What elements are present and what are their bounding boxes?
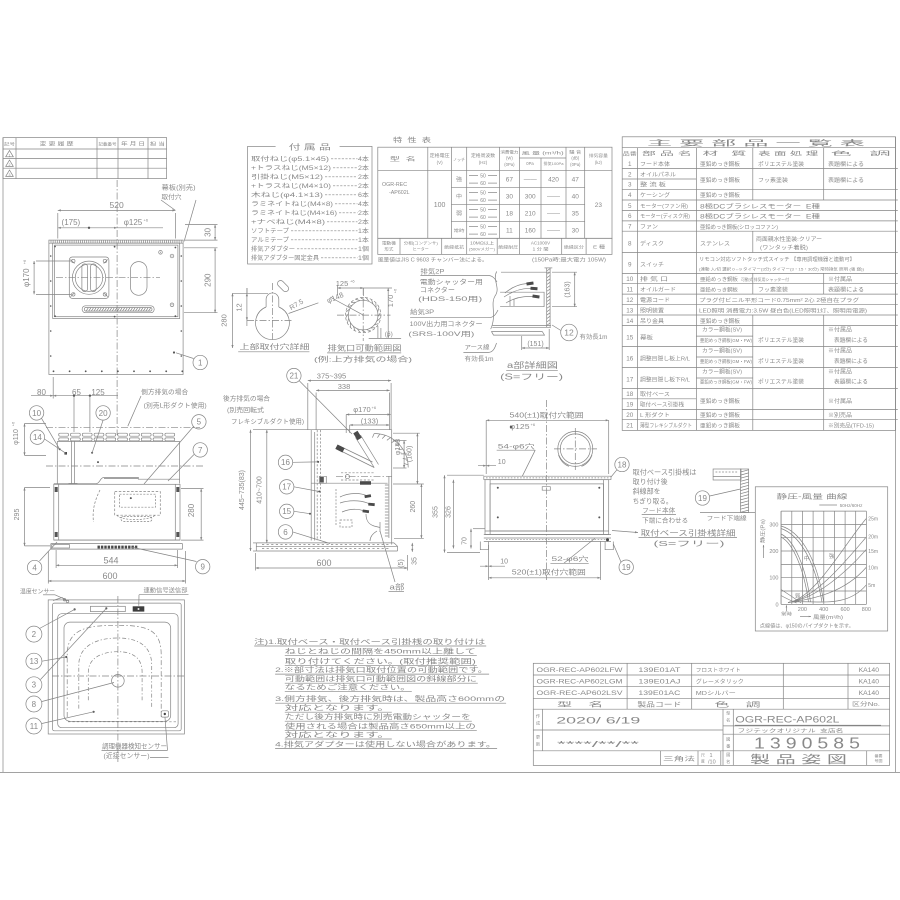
svg-text:4本: 4本 [358,200,369,208]
svg-text:亜鉛めっき鋼板: 亜鉛めっき鋼板 [700,275,739,283]
svg-text:50: 50 [480,173,486,179]
svg-text:100V出力用コネクター: 100V出力用コネクター [410,319,483,328]
svg-text:φ170: φ170 [22,268,31,287]
svg-text:色 調: 色 調 [831,150,893,158]
svg-text:(kJ): (kJ) [595,160,603,165]
svg-text:製品コード: 製品コード [637,700,681,709]
svg-text:ラミネイトねじ(M4×16): ラミネイトねじ(M4×16) [251,210,337,217]
svg-text:表題欄による: 表題欄による [828,160,864,168]
svg-text:電動機: 電動機 [382,241,396,246]
svg-text:2本: 2本 [358,173,369,181]
svg-text:表 面 処 理: 表 面 処 理 [758,150,819,158]
svg-text:8: 8 [32,700,37,709]
svg-text:取付ベース引掛桟は: 取付ベース引掛桟は [633,467,697,476]
svg-text:亜鉛めっき鋼板: 亜鉛めっき鋼板 [700,422,740,430]
svg-text:13: 13 [626,307,634,314]
svg-text:なるためご注意ください。: なるためご注意ください。 [285,682,411,691]
svg-text:製 品 姿 図: 製 品 姿 図 [750,752,847,766]
svg-text:点線値は、φ150のパイプダクトを示す。: 点線値は、φ150のパイプダクトを示す。 [760,623,854,630]
svg-text:アルミテープ: アルミテープ [251,237,290,244]
svg-text:10: 10 [32,409,41,418]
svg-text:19: 19 [622,563,631,572]
svg-text:4: 4 [628,192,632,199]
svg-text:調理機器検知センサー: 調理機器検知センサー [102,741,167,750]
svg-text:対応となります。: 対応となります。 [285,703,391,712]
svg-text:1個: 1個 [358,245,369,253]
svg-text:520: 520 [110,200,124,210]
svg-text:ラミネイトねじ(M4×8): ラミネイトねじ(M4×8) [251,201,333,208]
svg-text:吊り金具: 吊り金具 [640,317,664,325]
svg-text:16: 16 [626,356,634,363]
svg-text:オイルパネル: オイルパネル [640,171,676,178]
svg-text:3.側方排気、後方排気時は、製品高さ600mmの: 3.側方排気、後方排気時は、製品高さ600mmの [275,694,505,703]
svg-text:8極DCブラシレスモーター E種: 8極DCブラシレスモーター E種 [700,213,820,221]
svg-text:モーター(ディスク用): モーター(ディスク用) [640,212,690,220]
svg-text:名: 名 [726,717,730,724]
svg-text:ヒーター: ヒーター [413,247,429,252]
svg-text:(ワンタッチ着脱): (ワンタッチ着脱) [760,244,808,252]
svg-text:亜鉛めっき鋼板(GM・FW): 亜鉛めっき鋼板(GM・FW) [700,358,752,365]
svg-text:成: 成 [536,720,540,727]
svg-text:12: 12 [626,297,634,304]
svg-text:8極DCブラシレスモーター E種: 8極DCブラシレスモーター E種 [700,202,820,210]
svg-text:4: 4 [32,563,37,572]
svg-text:(例:上方排気の場合): (例:上方排気の場合) [314,354,412,363]
svg-text:1: 1 [9,153,11,157]
svg-text:(近接センサー): (近接センサー) [104,751,150,760]
svg-text:(0Pa): (0Pa) [570,162,581,167]
svg-text:12: 12 [564,328,574,338]
svg-text:型 名: 型 名 [557,700,603,709]
svg-text:LED照明 消費電力:3.5W 昼白色(LED照明1灯、照明: LED照明 消費電力:3.5W 昼白色(LED照明1灯、照明用電源) [699,306,867,314]
svg-text:上部取付穴詳細: 上部取付穴詳細 [240,342,310,351]
svg-text:2: 2 [628,171,632,178]
svg-text:絶縁抵抗: 絶縁抵抗 [444,244,465,251]
svg-text:3: 3 [32,681,37,690]
svg-text:表題欄による: 表題欄による [828,176,864,184]
svg-text:(連動 入/切 選択 0↔9 タイマー(3分) タイマー(3: (連動 入/切 選択 0↔9 タイマー(3分) タイマー(3・15・30分) 常… [699,265,865,271]
svg-text:300: 300 [525,193,536,200]
svg-text:定格電圧: 定格電圧 [430,152,451,159]
svg-text:※別売品(TFD-15): ※別売品(TFD-15) [828,422,874,430]
svg-text:0Pa: 0Pa [526,161,534,166]
svg-text:引掛ねじ(M5×12): 引掛ねじ(M5×12) [251,173,323,181]
svg-text:2本: 2本 [358,182,369,190]
svg-text:——: —— [547,210,561,217]
svg-text:5: 5 [628,203,632,210]
svg-text:調整目隠し板下R/L: 調整目隠し板下R/L [640,376,690,384]
svg-text:260: 260 [410,501,417,513]
svg-text:弱: 弱 [456,210,462,217]
svg-text:静圧-風量 曲線: 静圧-風量 曲線 [777,492,849,501]
svg-text:表題欄による: 表題欄による [834,336,868,344]
svg-text:300: 300 [769,523,778,529]
svg-text:排気アダプター: 排気アダプター [251,245,295,253]
svg-text:200: 200 [798,607,807,613]
svg-text:亜鉛めっき鋼板(シロッコファン): 亜鉛めっき鋼板(シロッコファン) [700,223,778,231]
svg-text:30: 30 [572,227,580,234]
svg-text:亜鉛めっき鋼板(GM・FW): 亜鉛めっき鋼板(GM・FW) [700,337,752,344]
svg-text:50: 50 [480,224,486,230]
svg-text:13: 13 [29,657,38,666]
svg-text:(150Pa時:最大電力 105W): (150Pa時:最大電力 105W) [532,256,606,264]
svg-text:52-φ6穴: 52-φ6穴 [552,554,590,563]
svg-text:40: 40 [572,193,580,200]
svg-text:亜鉛めっき鋼板: 亜鉛めっき鋼板 [700,317,740,325]
svg-text:KA140: KA140 [859,690,880,697]
svg-text:ディスク: ディスク [640,239,664,247]
svg-text:亜鉛めっき鋼板: 亜鉛めっき鋼板 [700,176,740,184]
svg-text:5: 5 [197,418,202,427]
svg-text:整 流 板: 整 流 板 [640,181,667,189]
svg-text:強: 強 [829,552,835,560]
svg-text:15m: 15m [868,549,878,555]
svg-text:注)1.取付ベース・取付ベース引掛桟の取り付けは: 注)1.取付ベース・取付ベース引掛桟の取り付けは [254,637,485,646]
svg-text:カラー鋼板(SV): カラー鋼板(SV) [702,367,742,375]
svg-text:オイルガード: オイルガード [640,285,676,293]
svg-text:中: 中 [804,555,810,563]
svg-text:19: 19 [626,402,634,409]
svg-text:****/**/**: ****/**/** [557,739,641,749]
svg-text:3: 3 [628,182,632,189]
svg-text:54-φ6穴: 54-φ6穴 [498,442,536,451]
svg-text:スイッチ: スイッチ [640,261,664,268]
svg-text:連動信号送信部: 連動信号送信部 [144,587,188,595]
svg-text:17: 17 [282,483,291,492]
svg-text:騒 音: 騒 音 [569,149,581,156]
svg-text:14: 14 [626,318,634,325]
svg-text:(W): (W) [506,156,513,161]
svg-text:幕板: 幕板 [640,334,653,342]
svg-text:50: 50 [480,190,486,196]
svg-text:410~700: 410~700 [256,476,263,504]
svg-text:15: 15 [282,507,291,516]
svg-text:番要: 番要 [875,753,883,758]
svg-text:1本: 1本 [358,227,369,235]
svg-text:OGR-REC: OGR-REC [382,182,407,188]
svg-text:型 名: 型 名 [390,155,416,163]
svg-text:375~395: 375~395 [317,372,346,381]
svg-text:取り付け後: 取り付け後 [633,477,668,486]
svg-text:定格周波数: 定格周波数 [471,152,496,159]
svg-text:部 品 名: 部 品 名 [642,150,692,158]
svg-text:対応となります。: 対応となります。 [285,730,391,739]
svg-text:尺: 尺 [701,754,705,758]
svg-text:(175): (175) [62,218,81,227]
svg-text:9: 9 [200,563,205,572]
svg-text:280: 280 [220,314,229,327]
svg-text:KA140: KA140 [859,678,880,685]
svg-text:25m: 25m [868,517,878,523]
svg-text:調整目隠し板上R/L: 調整目隠し板上R/L [640,355,690,363]
svg-text:給気3P: 給気3P [410,307,434,316]
svg-text:※付属品: ※付属品 [828,367,852,375]
svg-text:両面親水性塗装:クリアー: 両面親水性塗装:クリアー [756,235,822,243]
svg-text:ねじとねじの間隔を450mm以上離して: ねじとねじの間隔を450mm以上離して [285,647,476,656]
svg-text:度: 度 [701,759,705,764]
svg-text:+ナベねじ(M4×8): +ナベねじ(M4×8) [251,219,325,226]
svg-text:号図: 号図 [875,758,883,763]
svg-text:326: 326 [445,506,452,518]
svg-text:取付ベース引掛桟詳細: 取付ベース引掛桟詳細 [641,527,736,537]
svg-text:355: 355 [433,506,440,518]
svg-text:φ110: φ110 [13,429,20,445]
svg-text:420: 420 [548,176,559,183]
svg-text:ステンレス: ステンレス [700,240,730,247]
svg-text:フッ素塗装: フッ素塗装 [758,176,788,184]
svg-text:AC1000V: AC1000V [531,241,550,246]
svg-text:290: 290 [204,273,213,287]
svg-text:側方排気の場合: 側方排気の場合 [141,387,189,396]
svg-text:担 当: 担 当 [150,141,165,148]
svg-text:フード本体: フード本体 [640,160,670,168]
svg-text:風 量 (m³/h): 風 量 (m³/h) [522,150,565,157]
svg-text:+6: +6 [372,405,377,410]
svg-text:排気アダプター固定金具: 排気アダプター固定金具 [251,254,319,262]
svg-text:表題欄による: 表題欄による [834,357,868,365]
svg-text:※付属品: ※付属品 [828,326,852,334]
svg-text:60: 60 [480,198,486,204]
svg-text:(dB): (dB) [571,156,580,161]
svg-text:20m: 20m [868,535,878,541]
svg-text:(HDS-150用): (HDS-150用) [418,295,482,303]
svg-text:ファン: ファン [640,224,658,231]
svg-text:取付穴: 取付穴 [162,192,183,201]
svg-text:9: 9 [628,261,632,268]
svg-text:35: 35 [572,210,580,217]
svg-text:3: 3 [9,173,11,177]
svg-text:18: 18 [626,391,634,398]
svg-text:コネクター: コネクター [420,285,455,294]
svg-text:a部: a部 [390,582,406,592]
svg-text:※付属品: ※付属品 [828,275,852,283]
svg-text:280: 280 [187,503,196,517]
svg-text:品番: 品番 [623,151,637,158]
svg-text:18: 18 [618,460,627,469]
svg-text:139E01AJ: 139E01AJ [638,678,680,685]
svg-text:亜鉛めっき鋼板(GM・FW): 亜鉛めっき鋼板(GM・FW) [700,379,752,386]
svg-text:型: 型 [726,710,730,716]
svg-text:ポリエステル塗装: ポリエステル塗装 [758,160,804,168]
svg-text:1390585: 1390585 [754,736,865,753]
svg-text:(SRS-100V用): (SRS-100V用) [408,330,474,338]
svg-text:E 種: E 種 [593,244,606,251]
svg-text:変 更 履 歴: 変 更 履 歴 [40,141,74,148]
svg-text:2: 2 [9,163,11,167]
svg-text:11: 11 [30,722,39,731]
svg-text:8: 8 [628,240,632,247]
svg-text:ただし後方排気時に別売電動シャッターを: ただし後方排気時に別売電動シャッターを [285,712,471,721]
svg-text:分相(コンデンサ): 分相(コンデンサ) [404,241,439,246]
svg-text:20: 20 [626,412,634,419]
svg-text:風量値はJIS C 9603 チャンバー法による。: 風量値はJIS C 9603 チャンバー法による。 [378,256,488,264]
svg-text:6: 6 [283,528,288,537]
svg-text:10: 10 [626,276,634,283]
svg-text:21: 21 [626,423,634,430]
svg-text:有効長1m: 有効長1m [465,355,494,363]
svg-text:(133): (133) [361,416,379,425]
svg-text:リモコン対応ソフトタッチ式スイッチ 【専用調理機器と連動可】: リモコン対応ソフトタッチ式スイッチ 【専用調理機器と連動可】 [699,256,855,263]
svg-text:フロストホワイト: フロストホワイト [696,667,741,674]
svg-text:50Hz/60Hz: 50Hz/60Hz [840,503,863,508]
svg-text:2020/ 6/19: 2020/ 6/19 [556,716,640,727]
svg-text:1本: 1本 [358,236,369,244]
svg-text:φ125: φ125 [124,218,143,227]
svg-text:+6: +6 [531,422,536,427]
svg-text:17: 17 [626,377,634,384]
svg-text:(S=フリー): (S=フリー) [654,539,726,548]
svg-text:取付ベース引掛桟: 取付ベース引掛桟 [640,401,684,409]
svg-text:15: 15 [626,335,634,342]
svg-text:OGR-REC-AP602L: OGR-REC-AP602L [735,714,839,725]
svg-text:a部詳細図: a部詳細図 [507,360,558,370]
svg-text:亜鉛めっき鋼板: 亜鉛めっき鋼板 [700,191,740,199]
svg-text:+トラスねじ(M4×10): +トラスねじ(M4×10) [251,183,331,190]
svg-text:記号: 記号 [4,141,15,148]
svg-text:排気容量: 排気容量 [589,152,608,159]
svg-text:※付属品: ※付属品 [828,397,852,405]
svg-text:※別売品: ※別売品 [828,411,852,419]
svg-text:+トラスねじ(M5×12): +トラスねじ(M5×12) [251,165,331,172]
svg-text:フッ素塗装: フッ素塗装 [758,285,788,293]
svg-text:544: 544 [103,555,118,565]
svg-text:電動シャッター用: 電動シャッター用 [420,277,483,286]
svg-text:(160): (160) [407,446,414,462]
svg-text:——: —— [547,227,561,234]
svg-text:(163): (163) [564,281,571,297]
svg-text:600: 600 [102,571,117,581]
svg-text:11: 11 [627,286,634,293]
svg-text:20: 20 [99,409,108,418]
svg-text:排 気 口: 排 気 口 [640,275,668,283]
svg-text:4.排気アダプターは使用しない場合があります。: 4.排気アダプターは使用しない場合があります。 [275,740,496,749]
svg-text:60: 60 [480,215,486,221]
svg-text:67: 67 [506,176,514,183]
svg-text:2.※部寸法は排気口取付位置の可動範囲です。: 2.※部寸法は排気口取付位置の可動範囲です。 [275,665,488,674]
svg-text:亜鉛めっき鋼板: 亜鉛めっき鋼板 [700,397,740,405]
svg-text:1個: 1個 [358,254,369,262]
svg-text:——: —— [547,193,561,200]
svg-text:L 形ダクト: L 形ダクト [640,411,670,419]
svg-text:4本: 4本 [358,155,369,163]
svg-text:取付ねじ(φ5.1×45): 取付ねじ(φ5.1×45) [251,155,329,163]
svg-text:常時: 常時 [454,227,466,234]
svg-text:520(±1)取付穴範囲: 520(±1)取付穴範囲 [512,567,586,576]
svg-text:200: 200 [769,549,778,555]
svg-text:OGR-REC-AP602LFW: OGR-REC-AP602LFW [537,667,624,674]
svg-text:210: 210 [525,210,536,217]
svg-text:材 質: 材 質 [703,150,748,158]
svg-text:800: 800 [862,607,871,613]
svg-text:139E01AC: 139E01AC [638,690,680,697]
svg-text:取付ベース: 取付ベース [640,390,670,398]
svg-text:名: 名 [726,758,730,765]
svg-text:7: 7 [198,446,203,455]
svg-text:亜鉛めっき鋼板: 亜鉛めっき鋼板 [700,411,740,419]
svg-text:50: 50 [480,207,486,213]
svg-text:下端に合わせる: 下端に合わせる [642,515,688,524]
svg-text:100: 100 [769,576,778,582]
svg-text:445~735(83): 445~735(83) [239,470,246,510]
svg-text:600: 600 [841,607,850,613]
svg-text:60: 60 [480,232,486,238]
svg-text:2本: 2本 [358,164,369,172]
svg-text:中: 中 [456,192,462,200]
svg-text:主 要 部 品 一 覧 表: 主 要 部 品 一 覧 表 [647,137,867,147]
svg-text:有効長1m: 有効長1m [580,333,608,341]
svg-text:照明装置: 照明装置 [640,306,664,314]
svg-text:1: 1 [709,753,712,759]
svg-text:10: 10 [500,559,508,566]
svg-text:6: 6 [628,213,632,220]
svg-text:ノッチ: ノッチ [453,157,465,162]
svg-text:295: 295 [14,509,21,521]
svg-text:2本: 2本 [358,209,369,217]
svg-text:+6: +6 [393,288,398,293]
svg-text:記載番号: 記載番号 [99,141,117,148]
svg-text:ソフトテープ: ソフトテープ [251,228,290,235]
svg-text:排気口可動範囲図: 排気口可動範囲図 [328,343,402,353]
svg-text:表題欄による: 表題欄による [828,285,864,293]
svg-text:600: 600 [316,558,331,568]
svg-text:14: 14 [33,433,42,442]
svg-text:斜線部を: 斜線部を [633,487,661,496]
svg-text:400: 400 [819,607,828,613]
svg-text:7: 7 [628,224,632,231]
svg-text:1: 1 [198,358,203,367]
svg-text:木ねじ(φ4.1×13): 木ねじ(φ4.1×13) [251,191,323,199]
svg-text:形式: 形式 [384,247,393,252]
svg-text:10m: 10m [868,566,878,572]
svg-text:アース線: アース線 [465,343,490,351]
svg-text:+6: +6 [144,218,149,223]
svg-text:(0Pa): (0Pa) [504,162,515,167]
svg-text:風量(m³/h): 風量(m³/h) [813,614,843,621]
svg-text:ポリエステル塗装: ポリエステル塗装 [758,378,804,386]
svg-text:新: 新 [536,741,540,748]
svg-text:可動範囲は排気口可動範囲図の斜線部分に: 可動範囲は排気口可動範囲図の斜線部分に [285,674,477,683]
svg-text:6本: 6本 [358,191,369,199]
svg-text:(6): (6) [385,331,393,338]
svg-text:47: 47 [572,176,580,183]
svg-text:10MΩ以上: 10MΩ以上 [470,240,494,246]
svg-text:11: 11 [506,227,513,234]
svg-text:23: 23 [595,202,603,209]
svg-text:カラー鋼板(SV): カラー鋼板(SV) [702,326,742,334]
svg-text:排気100Pa: 排気100Pa [544,161,565,166]
svg-text:特 性 表: 特 性 表 [393,135,432,144]
svg-text:付 属 品: 付 属 品 [289,143,331,152]
svg-text:(5): (5) [398,559,405,568]
svg-text:+6: +6 [11,421,16,426]
svg-text:60: 60 [480,181,486,187]
svg-text:18: 18 [506,210,514,217]
svg-text:ポリエステル塗装: ポリエステル塗装 [758,336,804,344]
svg-text:5m: 5m [868,583,875,589]
svg-text:(Hz): (Hz) [479,160,488,165]
svg-text:ちぎり取る。: ちぎり取る。 [633,496,673,505]
svg-text:プラグ付ビニル平形コード0.75mm² 2心 2極自在プラグ: プラグ付ビニル平形コード0.75mm² 2心 2極自在プラグ [699,296,859,304]
svg-text:(500Vメガー): (500Vメガー) [469,246,496,252]
svg-text:(151): (151) [527,341,543,348]
svg-text:160: 160 [525,227,536,234]
svg-text:100: 100 [434,202,446,209]
svg-text:170: 170 [386,295,395,308]
svg-text:薄型フレキシブルダクト: 薄型フレキシブルダクト [640,422,692,430]
svg-text:三角法: 三角法 [663,755,695,763]
svg-text:フジテックオリジナル 支店名: フジテックオリジナル 支店名 [738,728,844,735]
svg-text:MDシルバー: MDシルバー [696,690,736,697]
